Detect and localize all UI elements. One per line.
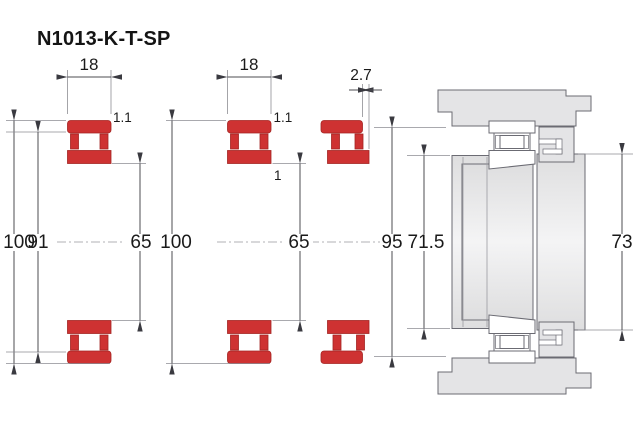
dim-label-front-chamfer: 1.1: [113, 110, 132, 125]
dim-label-tapered-width: 18: [240, 55, 259, 74]
dim-label-tapered-outer-diameter: 100: [160, 232, 192, 253]
dim-abutment-diameter: 71.5: [407, 156, 450, 329]
cage-bar: [332, 134, 340, 149]
inner-ring-top-section: [68, 151, 112, 164]
inner-ring-bottom-section: [228, 321, 272, 334]
cage-bar: [231, 134, 239, 149]
dim-axial-offset: 2.7: [349, 67, 382, 149]
cage-bar: [100, 335, 108, 350]
dim-label-front-rib-diameter: 91: [27, 232, 48, 253]
dim-label-tapered-chamfer: 1.1: [274, 110, 293, 125]
cage-bar: [71, 134, 79, 149]
dim-label-tapered-inner-chamfer: 1: [274, 168, 282, 183]
mounted-bearing-bottom-section: [489, 315, 535, 363]
drawing-canvas: 18 1.1 100 91 65: [0, 0, 640, 440]
dim-label-shoulder-diameter: 73: [611, 232, 632, 253]
locating-ring-bottom: [539, 322, 574, 357]
outer-ring: [489, 121, 535, 133]
dim-front-bore: 65: [112, 164, 154, 321]
dim-tapered-bore: 65: [273, 164, 314, 321]
cage-bar: [260, 335, 268, 350]
inner-ring-top-section: [328, 151, 370, 164]
cage-bar: [71, 335, 79, 350]
dim-shoulder-diameter: 73: [578, 154, 636, 330]
cage-bar: [231, 335, 239, 350]
dim-label-front-width: 18: [80, 55, 99, 74]
locating-ring-top: [539, 127, 574, 162]
outer-ring-top-section: [68, 121, 112, 134]
outer-ring-top-section: [228, 121, 272, 134]
shaft-shoulder: [537, 154, 585, 330]
dim-label-tapered-bore: 65: [288, 232, 309, 253]
roller: [500, 136, 524, 149]
outer-ring-top-section: [321, 121, 363, 134]
mounting-drawing: [438, 90, 591, 394]
cage-bar: [355, 134, 363, 149]
cage-bar: [357, 335, 365, 350]
outer-ring-bottom-section: [68, 351, 112, 364]
cage-bar: [100, 134, 108, 149]
inner-ring-bottom-section: [328, 321, 370, 334]
mounted-bearing-top-section: [489, 121, 535, 169]
inner-ring-top-section: [228, 151, 272, 164]
cage-bar: [260, 134, 268, 149]
dim-label-axial-offset: 2.7: [350, 67, 372, 84]
dim-label-abutment-diameter: 71.5: [408, 232, 445, 253]
dim-front-width: 18: [68, 55, 112, 114]
cage-bar: [333, 335, 341, 350]
outer-ring-bottom-section: [228, 351, 272, 364]
shaft-under-bearing: [462, 164, 533, 320]
dim-label-front-bore: 65: [130, 232, 151, 253]
outer-ring-bottom-section: [321, 351, 363, 364]
bearing-drawing-page: N1013-K-T-SP: [0, 0, 640, 440]
inner-ring-bottom-section: [68, 321, 112, 334]
outer-ring: [489, 351, 535, 363]
dim-label-displaced-raceway: 95: [381, 232, 402, 253]
dim-tapered-width: 18: [228, 55, 272, 114]
roller: [500, 336, 524, 349]
